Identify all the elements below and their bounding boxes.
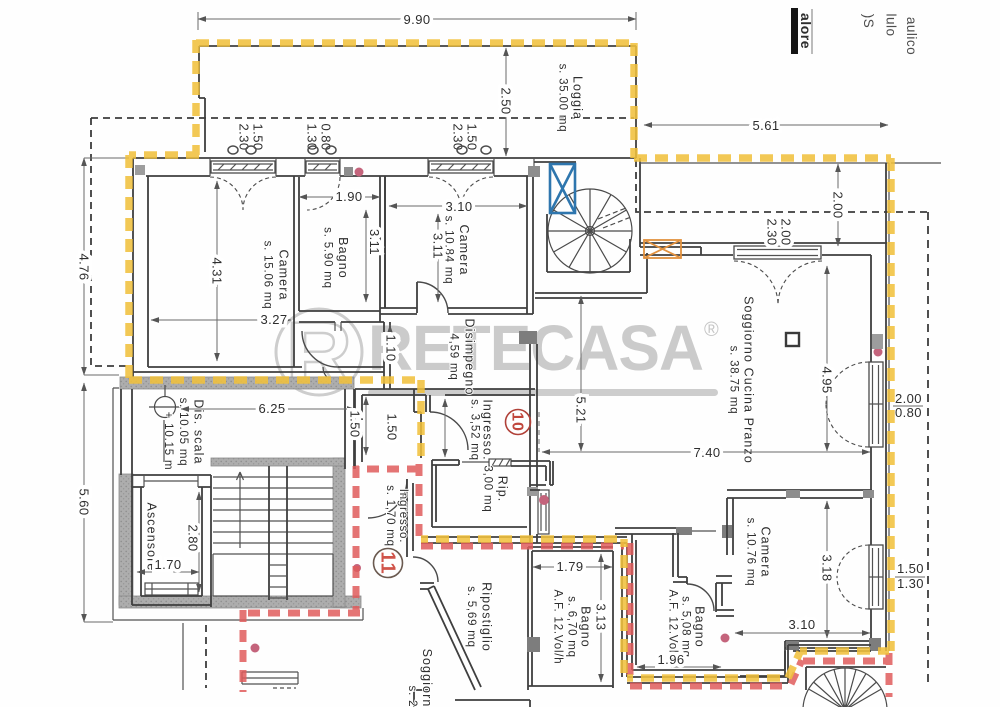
svg-text:3.13: 3.13 (594, 604, 609, 631)
svg-text:lulo: lulo (883, 13, 898, 36)
svg-text:10: 10 (509, 412, 526, 432)
svg-text:7.40: 7.40 (694, 445, 721, 460)
svg-text:Soggiorno: Soggiorno (420, 649, 434, 707)
svg-text:6.25: 6.25 (259, 401, 286, 416)
svg-text:Disimpegno: Disimpegno (463, 318, 477, 395)
svg-text:s. 35.00 mq: s. 35.00 mq (557, 64, 569, 133)
svg-text:Soggiorno Cucina Pranzo: Soggiorno Cucina Pranzo (742, 296, 756, 464)
svg-text:Ingresso.: Ingresso. (481, 399, 495, 460)
svg-text:Rip.: Rip. (496, 476, 510, 503)
svg-text:5.61: 5.61 (753, 118, 780, 133)
svg-text:)S: )S (861, 14, 876, 29)
svg-text:2.00: 2.00 (779, 219, 794, 246)
svg-text:1.96: 1.96 (658, 652, 685, 667)
svg-text:2.00: 2.00 (895, 391, 922, 406)
svg-text:s. 38.75 mq: s. 38.75 mq (728, 346, 740, 415)
svg-text:alore: alore (798, 13, 814, 49)
svg-text:4.95: 4.95 (820, 367, 835, 394)
svg-text:3.18: 3.18 (820, 555, 835, 582)
svg-text:®: ® (704, 319, 719, 341)
svg-text:Ingresso.: Ingresso. (397, 489, 409, 544)
svg-text:1.50: 1.50 (897, 561, 924, 576)
svg-text:s. 3,52 mq: s. 3,52 mq (469, 399, 481, 461)
svg-text:aulico: aulico (904, 17, 919, 55)
svg-text:s. 10.76 mq: s. 10.76 mq (745, 518, 757, 587)
svg-text:2.50: 2.50 (499, 88, 514, 115)
svg-text:3.27: 3.27 (261, 312, 288, 327)
svg-text:s. 5.90 mq: s. 5.90 mq (322, 227, 334, 289)
svg-text:4,59 mq: 4,59 mq (448, 333, 460, 380)
svg-text:3.10: 3.10 (446, 199, 473, 214)
svg-text:Bagno: Bagno (693, 606, 707, 648)
svg-text:3.11: 3.11 (431, 233, 446, 259)
svg-text:s. 1,70 mq: s. 1,70 mq (384, 485, 396, 547)
svg-text:Camera: Camera (277, 249, 291, 300)
svg-text:0.80: 0.80 (895, 405, 922, 420)
svg-text:A.F. 12.Vol/h: A.F. 12.Vol/h (552, 590, 564, 665)
svg-text:R: R (286, 304, 352, 406)
svg-text:3.11: 3.11 (367, 229, 382, 255)
svg-text:RETECASA: RETECASA (368, 312, 703, 384)
svg-text:11: 11 (377, 551, 399, 574)
svg-text:2.80: 2.80 (186, 525, 201, 552)
svg-text:Camera: Camera (457, 224, 471, 275)
svg-text:1.70: 1.70 (155, 557, 182, 572)
svg-text:4.76: 4.76 (77, 254, 92, 281)
svg-text:s. 10.05 mq: s. 10.05 mq (177, 398, 189, 467)
svg-text:1.30: 1.30 (897, 576, 924, 591)
svg-text:5.21: 5.21 (574, 397, 589, 424)
svg-text:s. 28: s. 28 (406, 686, 418, 707)
svg-text:3,00 mq: 3,00 mq (482, 465, 494, 512)
svg-text:Bagno: Bagno (336, 237, 350, 279)
svg-text:Ripostiglio: Ripostiglio (480, 582, 494, 652)
svg-text:3.10: 3.10 (789, 617, 816, 632)
svg-text:Bagno: Bagno (579, 606, 593, 648)
svg-text:1.50: 1.50 (465, 124, 480, 151)
svg-text:1.10: 1.10 (384, 335, 399, 362)
svg-text:s. 5,69 mq: s. 5,69 mq (465, 586, 477, 648)
svg-text:Camera: Camera (759, 526, 773, 577)
svg-text:s. 6,70 mq: s. 6,70 mq (566, 596, 578, 658)
svg-text:9.90: 9.90 (404, 12, 431, 27)
svg-text:s. 15.06 mq: s. 15.06 mq (262, 241, 274, 310)
svg-text:2.00: 2.00 (831, 192, 846, 219)
svg-text:Loggia: Loggia (571, 76, 585, 120)
svg-text:4.31: 4.31 (210, 258, 225, 285)
svg-text:1.79: 1.79 (557, 559, 584, 574)
svg-text:5.60: 5.60 (77, 489, 92, 516)
svg-text:1.90: 1.90 (336, 189, 363, 204)
svg-text:1.50: 1.50 (385, 414, 400, 441)
svg-text:1.50: 1.50 (348, 411, 363, 438)
svg-text:2.30: 2.30 (765, 219, 780, 246)
svg-text:s. 5,08 mq: s. 5,08 mq (680, 596, 692, 658)
